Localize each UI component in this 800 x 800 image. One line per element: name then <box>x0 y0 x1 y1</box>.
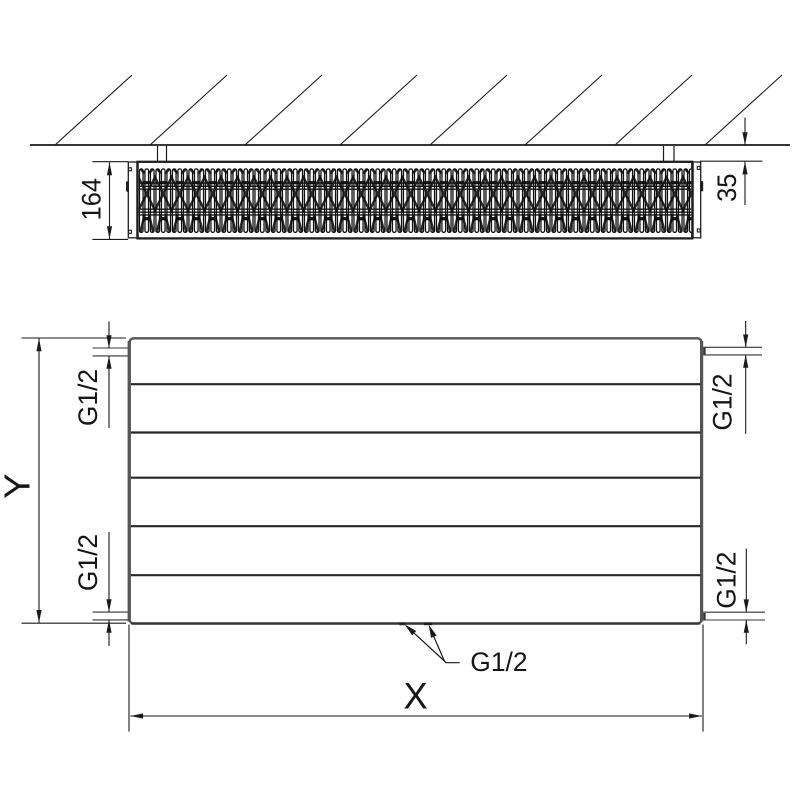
svg-text:G1/2: G1/2 <box>708 373 738 430</box>
svg-text:35: 35 <box>712 174 742 202</box>
svg-text:X: X <box>404 676 428 717</box>
svg-text:G1/2: G1/2 <box>711 552 741 609</box>
svg-text:Y: Y <box>0 473 37 499</box>
svg-text:G1/2: G1/2 <box>470 647 527 677</box>
svg-text:G1/2: G1/2 <box>73 369 103 426</box>
svg-text:164: 164 <box>77 178 107 220</box>
svg-text:G1/2: G1/2 <box>73 534 103 591</box>
